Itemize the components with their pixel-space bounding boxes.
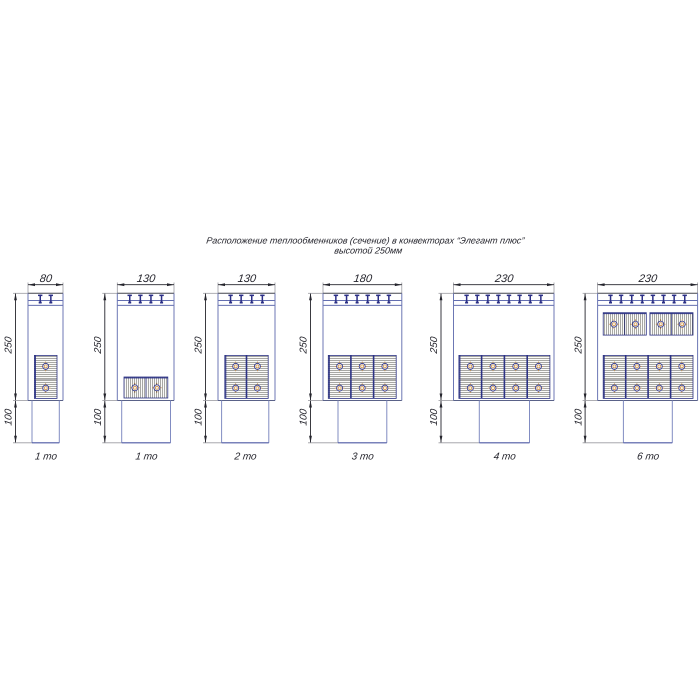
svg-text:100: 100 [4,408,15,426]
svg-text:1 то: 1 то [34,452,58,463]
svg-text:180: 180 [353,273,374,285]
svg-text:100: 100 [429,408,440,426]
svg-text:6 то: 6 то [636,452,660,463]
svg-text:1 то: 1 то [135,452,159,463]
svg-text:230: 230 [637,273,659,285]
svg-text:250: 250 [299,336,310,355]
svg-text:130: 130 [237,273,258,285]
svg-text:100: 100 [93,408,104,426]
svg-text:высотой 250мм: высотой 250мм [334,245,404,255]
svg-text:250: 250 [194,336,205,355]
svg-text:250: 250 [4,336,15,355]
svg-text:250: 250 [573,336,584,355]
svg-text:100: 100 [573,408,584,426]
svg-text:80: 80 [39,273,54,285]
svg-text:250: 250 [429,336,440,355]
svg-text:Расположение теплообменников (: Расположение теплообменников (сечение) в… [206,236,526,246]
svg-text:100: 100 [299,408,310,426]
svg-text:250: 250 [93,336,104,355]
svg-text:230: 230 [493,273,515,285]
svg-text:4 то: 4 то [493,452,517,463]
svg-text:3 то: 3 то [351,452,375,463]
svg-text:130: 130 [136,273,157,285]
svg-text:100: 100 [194,408,205,426]
svg-text:2 то: 2 то [233,452,258,463]
